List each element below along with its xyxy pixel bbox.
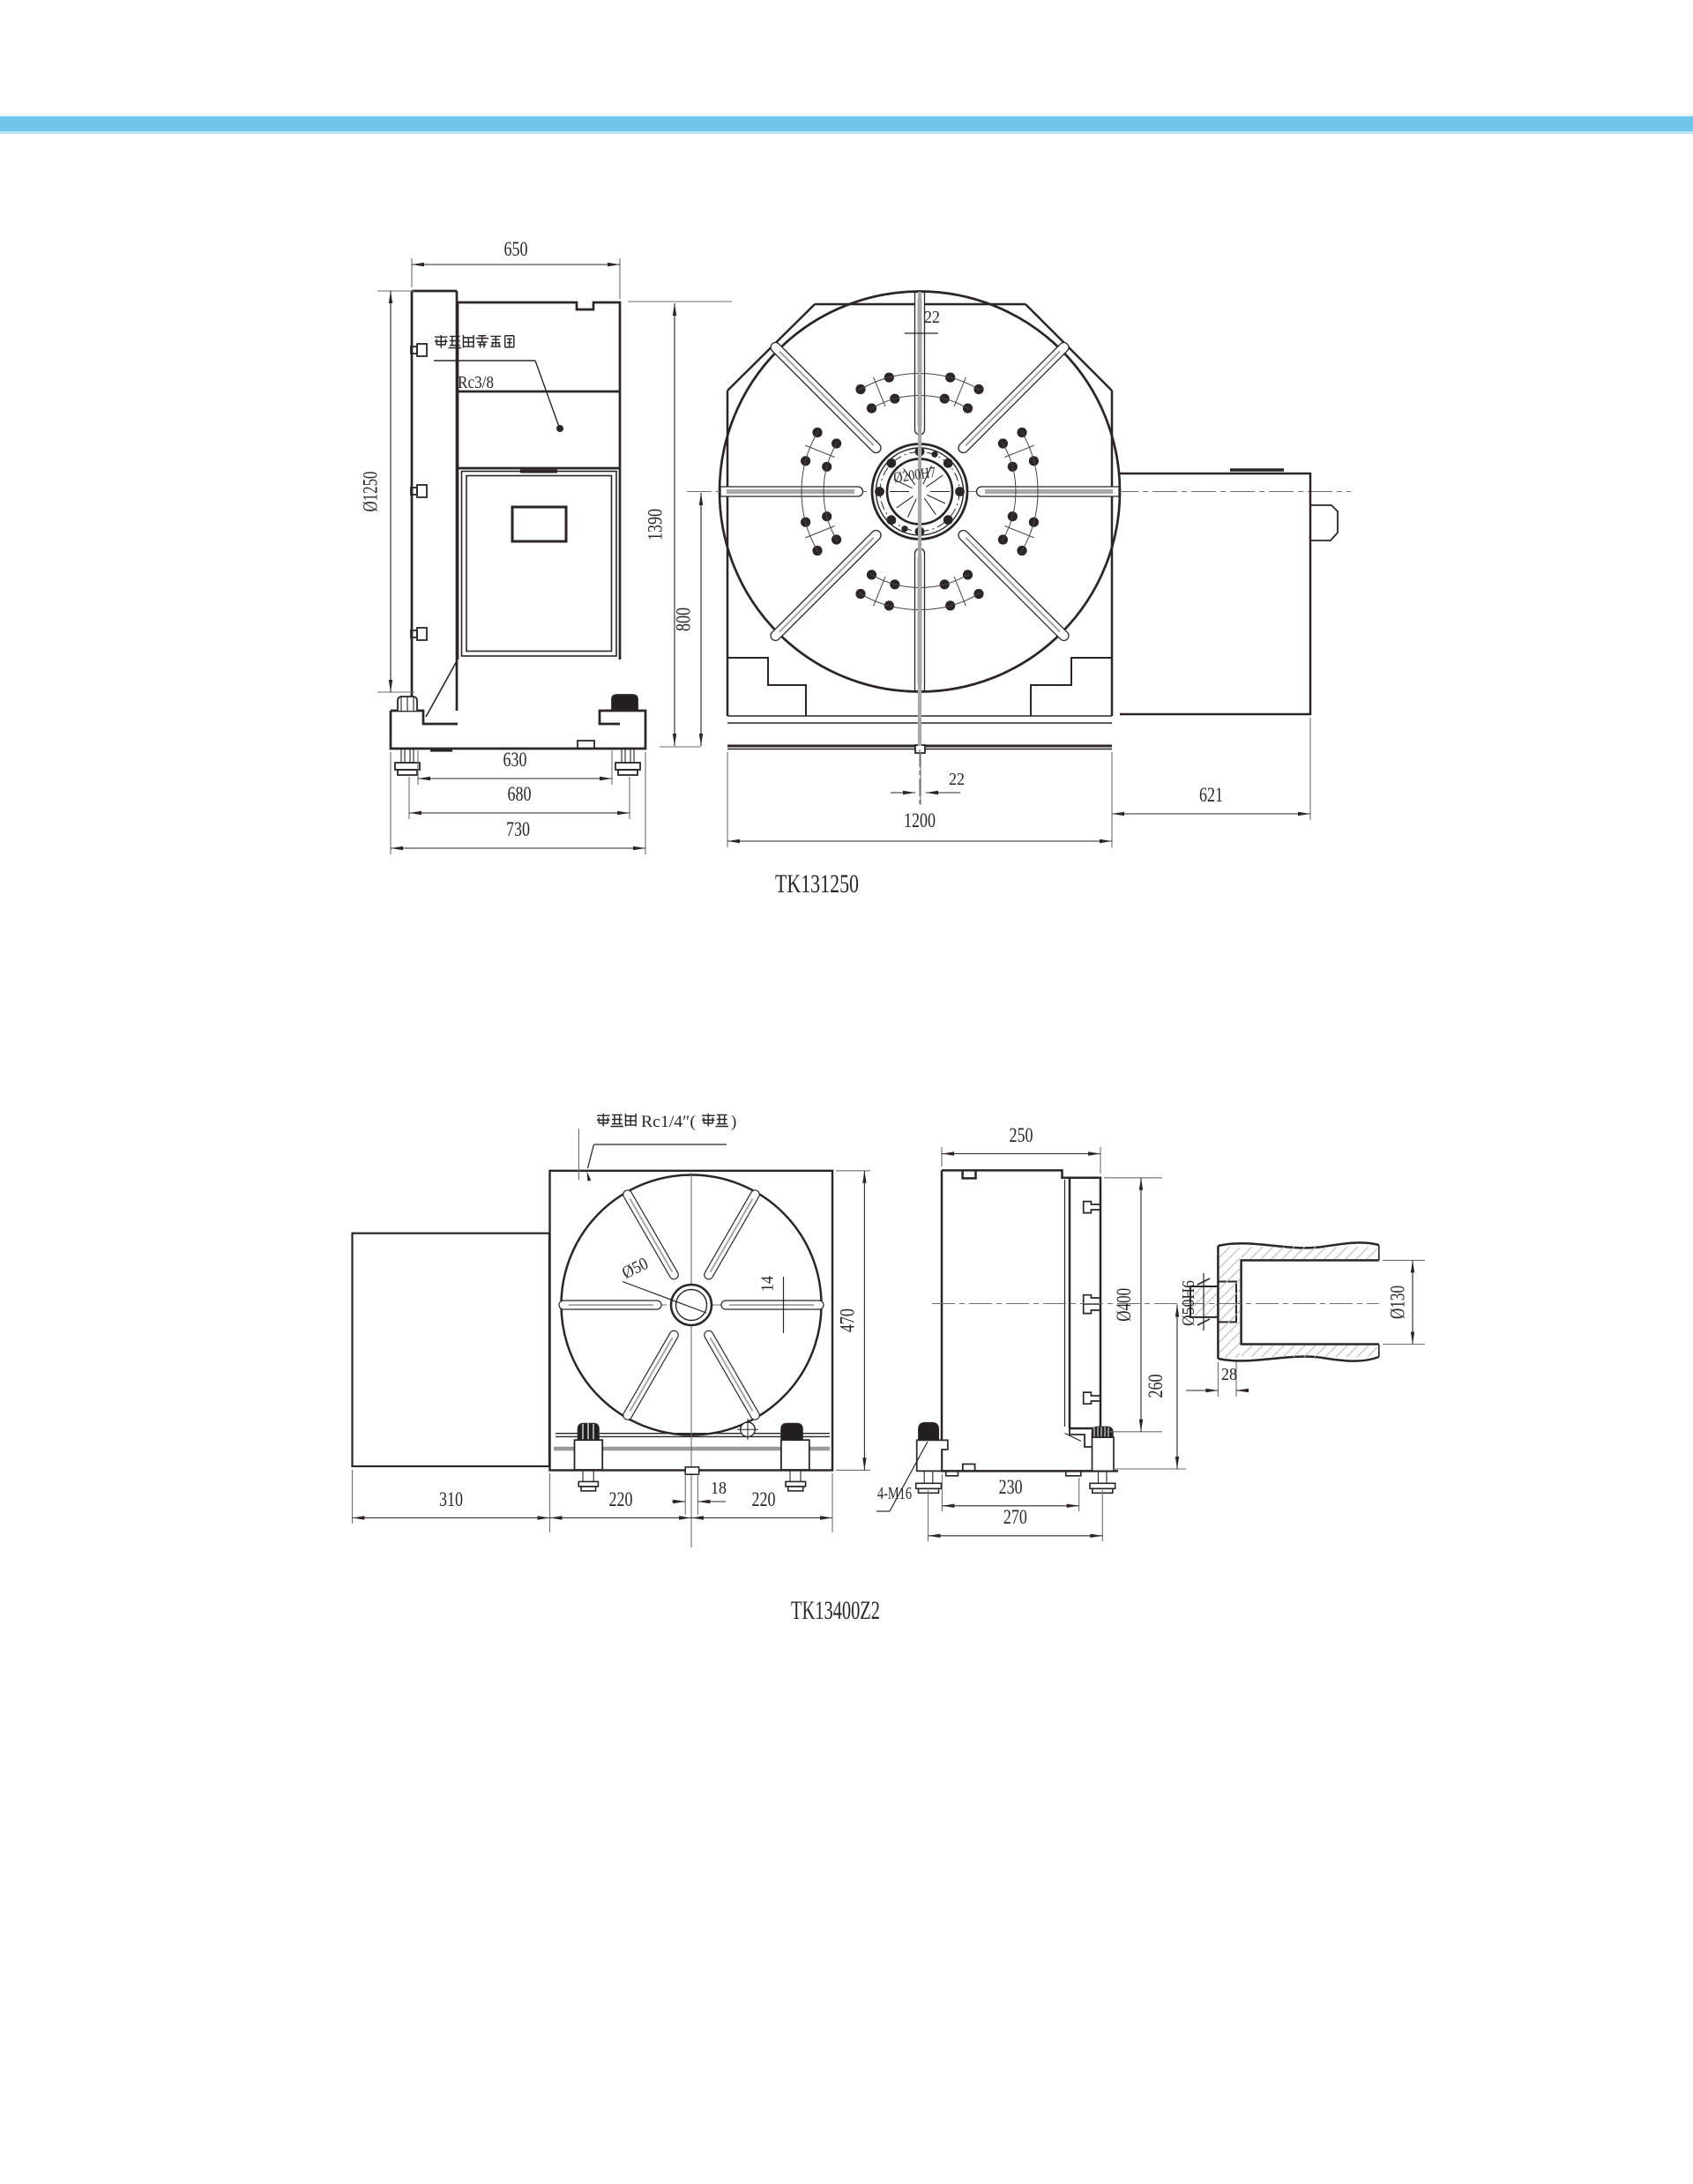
svg-text:22: 22: [924, 308, 940, 327]
svg-text:230: 230: [999, 1476, 1023, 1498]
svg-text:Ø1250: Ø1250: [360, 472, 382, 512]
svg-text:270: 270: [1003, 1506, 1027, 1528]
svg-text:220: 220: [752, 1488, 776, 1510]
svg-text:730: 730: [506, 818, 530, 840]
svg-text:Rc3/8: Rc3/8: [458, 373, 494, 392]
svg-text:680: 680: [508, 783, 532, 805]
svg-text:22: 22: [949, 770, 965, 789]
svg-text:18: 18: [711, 1479, 727, 1498]
svg-text:4-M16: 4-M16: [877, 1484, 912, 1503]
svg-text:260: 260: [1145, 1375, 1167, 1398]
svg-text:630: 630: [503, 749, 527, 771]
svg-text:Ø400: Ø400: [1113, 1288, 1135, 1322]
svg-text:28: 28: [1221, 1365, 1237, 1384]
svg-text:1390: 1390: [645, 509, 667, 540]
svg-text:TK131250: TK131250: [775, 869, 859, 898]
svg-text:650: 650: [504, 238, 528, 260]
svg-text:220: 220: [609, 1488, 633, 1510]
svg-text:1200: 1200: [904, 809, 936, 831]
svg-text:470: 470: [837, 1308, 859, 1332]
svg-text:250: 250: [1010, 1124, 1033, 1146]
svg-text:Rc1/4″(: Rc1/4″(: [641, 1113, 696, 1131]
svg-text:Ø50H6: Ø50H6: [1179, 1280, 1198, 1326]
svg-text:14: 14: [758, 1276, 778, 1292]
svg-text:): ): [731, 1113, 736, 1131]
svg-text:TK13400Z2: TK13400Z2: [791, 1596, 880, 1625]
svg-text:310: 310: [439, 1488, 463, 1510]
svg-text:Ø130: Ø130: [1387, 1286, 1409, 1319]
svg-text:800: 800: [673, 607, 695, 631]
svg-text:621: 621: [1199, 784, 1223, 806]
